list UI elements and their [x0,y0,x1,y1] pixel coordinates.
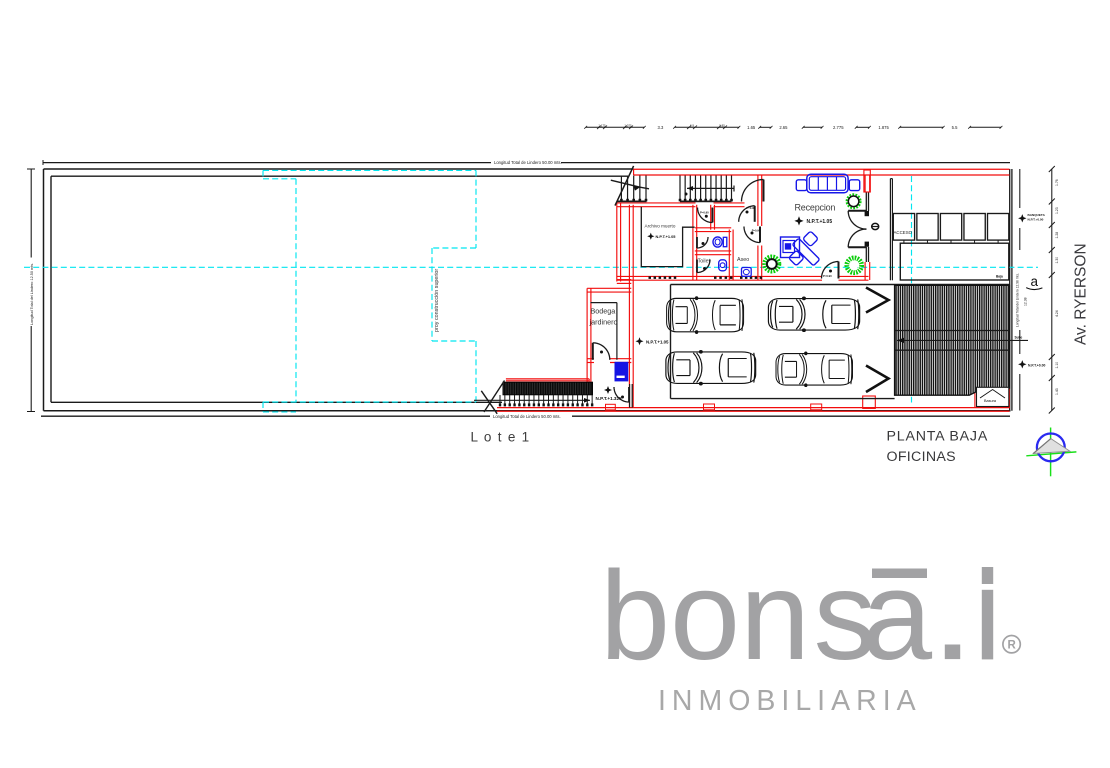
svg-text:n: n [740,545,810,686]
svg-text:4.24: 4.24 [1055,310,1059,317]
svg-text:ACCESO: ACCESO [894,230,913,235]
svg-text:1.76: 1.76 [1055,179,1059,186]
svg-text:proy construcción superior: proy construcción superior [434,269,440,332]
svg-text:1.43: 1.43 [1055,388,1059,395]
svg-text:o: o [670,545,740,686]
svg-text:5.5: 5.5 [952,125,958,130]
svg-text:3.3: 3.3 [657,125,663,130]
svg-text:Longitud Total del Lindero 12.: Longitud Total del Lindero 12.98 mts. [1016,273,1020,327]
svg-text:Bodega: Bodega [591,307,616,316]
svg-text:N.P.T.+1.325: N.P.T.+1.325 [596,396,623,401]
svg-text:jardinero: jardinero [589,318,618,327]
svg-text:1.10: 1.10 [1055,362,1059,369]
svg-text:b: b [600,545,670,686]
svg-text:N.P.T.+1.05: N.P.T.+1.05 [656,234,677,239]
svg-text:Toilet: Toilet [698,259,711,265]
svg-text:1.28: 1.28 [1055,232,1059,239]
svg-text:Recepcion: Recepcion [795,203,836,213]
svg-text:Longitud Total de Lindero 50.0: Longitud Total de Lindero 50.00 mts. [494,160,562,165]
svg-text:1.30: 1.30 [1055,257,1059,264]
svg-text:2.65: 2.65 [779,125,788,130]
svg-text:a: a [862,545,933,686]
svg-text:1.65: 1.65 [747,125,756,130]
svg-text:Av. RYERSON: Av. RYERSON [1073,243,1090,345]
svg-text:L o t e 1: L o t e 1 [471,430,531,445]
svg-text:Sube: Sube [1015,336,1023,340]
svg-text:Longitud Total del Lindero 12.: Longitud Total del Lindero 12.50 mts. [30,263,34,325]
svg-text:Archivo muerto: Archivo muerto [645,224,676,229]
svg-text:P=0.90: P=0.90 [823,274,832,278]
svg-text:Baja: Baja [996,275,1003,279]
svg-text:1.875: 1.875 [878,125,889,130]
svg-text:Aseo: Aseo [737,257,749,263]
svg-text:2.775: 2.775 [833,125,844,130]
svg-text:INMOBILIARIA: INMOBILIARIA [658,685,922,717]
svg-text:1.23: 1.23 [1055,207,1059,214]
svg-text:N.P.T.+1.05: N.P.T.+1.05 [646,339,669,344]
svg-text:P=0.90: P=0.90 [700,211,709,215]
svg-text:R: R [1007,640,1016,652]
svg-text:a: a [1031,274,1039,289]
svg-text:P=0.90: P=0.90 [752,229,761,233]
svg-text:P=0.90: P=0.90 [747,206,756,210]
svg-text:N.P.T.+0.00: N.P.T.+0.00 [1028,363,1045,367]
svg-text:12.38: 12.38 [1024,297,1028,306]
svg-text:Longitud Total de Lindero 50.0: Longitud Total de Lindero 50.00 mts. [493,414,561,419]
svg-text:Basura: Basura [984,399,997,403]
svg-text:N.P.T.+0.00: N.P.T.+0.00 [1028,218,1044,222]
svg-text:N.P.T.+1.05: N.P.T.+1.05 [807,219,833,225]
svg-text:BANQUETA: BANQUETA [1028,213,1046,217]
svg-text:PLANTA BAJA: PLANTA BAJA [887,429,989,445]
svg-text:OFICINAS: OFICINAS [887,449,956,465]
